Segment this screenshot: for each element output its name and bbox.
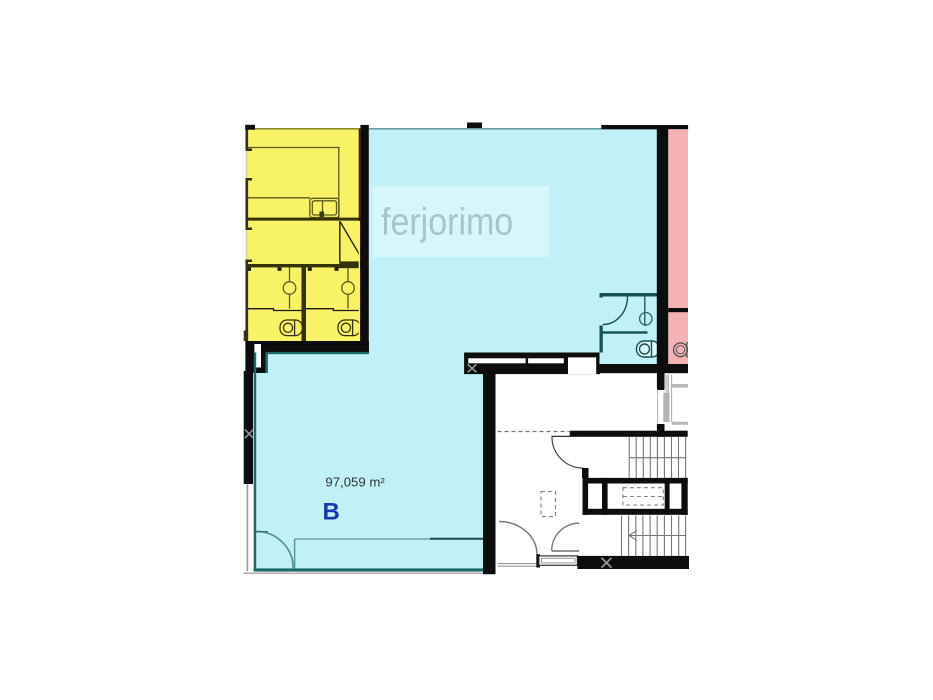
svg-text:ferjorimo: ferjorimo [381, 200, 513, 243]
svg-text:B: B [323, 498, 340, 525]
svg-text:97,059 m²: 97,059 m² [325, 475, 385, 490]
